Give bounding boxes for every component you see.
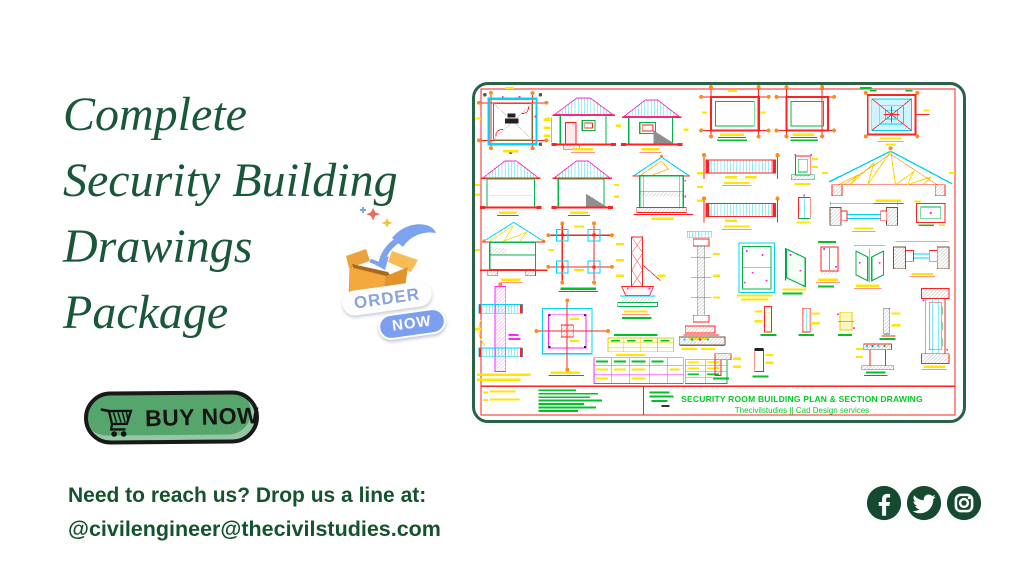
title-strip-notes xyxy=(483,389,602,411)
sheet-title: SECURITY ROOM BUILDING PLAN & SECTION DR… xyxy=(645,394,959,404)
cad-roof-truss xyxy=(822,143,955,203)
buy-now-button[interactable]: BUY NOW xyxy=(84,390,259,445)
cad-beam-plan-1 xyxy=(702,153,780,186)
contact-block: Need to reach us? Drop us a line at: @ci… xyxy=(68,484,441,542)
cad-bench-detail xyxy=(856,344,894,376)
cad-building-section xyxy=(633,155,703,220)
contact-email: @civilengineer@thecivilstudies.com xyxy=(68,517,441,542)
cad-elevation-front xyxy=(543,98,615,153)
cad-plate-detail xyxy=(914,201,945,226)
cad-footing-layout xyxy=(546,221,613,291)
cad-cross-wall-detail xyxy=(475,283,531,381)
cad-column-section-b xyxy=(796,195,810,224)
headline-line-1: Complete xyxy=(63,82,398,148)
cad-frame-section-detail xyxy=(816,241,840,287)
cad-guard-post-section xyxy=(475,222,553,282)
cad-column-section-a xyxy=(791,154,818,185)
cad-small-detail-1 xyxy=(755,306,777,335)
cad-column-layout-plan-2 xyxy=(775,85,836,141)
social-links xyxy=(866,485,982,521)
cad-window-head-detail xyxy=(894,241,950,277)
order-now-sticker[interactable]: ORDER NOW xyxy=(336,204,450,340)
instagram-icon[interactable] xyxy=(946,485,982,521)
cad-wall-column-section xyxy=(683,231,720,340)
cad-small-detail-3 xyxy=(837,312,855,336)
cad-sheet: SECURITY ROOM BUILDING PLAN & SECTION DR… xyxy=(472,82,966,423)
cart-icon xyxy=(100,403,137,439)
sheet-subtitle: Thecivilstudies || Cad Design services xyxy=(645,406,959,415)
buy-now-label: BUY NOW xyxy=(145,402,260,432)
cad-roof-plan xyxy=(860,87,929,141)
cad-elevation-rear xyxy=(475,161,541,215)
cad-wall-layer-strip xyxy=(679,337,725,350)
cad-double-door-detail xyxy=(854,245,886,288)
cad-schedule-table-magenta xyxy=(594,354,683,384)
promo-banner: Complete Security Building Drawings Pack… xyxy=(0,0,1024,576)
cad-door-panel-detail xyxy=(737,243,775,301)
cad-schedule-table-yellow xyxy=(608,334,673,352)
cad-tall-window-section xyxy=(921,289,949,370)
twitter-icon[interactable] xyxy=(906,485,942,521)
cad-column-footing-section xyxy=(616,237,666,319)
cad-bottom-detail-2 xyxy=(753,348,774,377)
cad-elevation-side xyxy=(616,100,688,153)
cad-elevation-side-2 xyxy=(551,161,618,215)
contact-prompt: Need to reach us? Drop us a line at: xyxy=(68,484,441,508)
cad-small-detail-2 xyxy=(798,308,820,335)
cad-beam-plan-2 xyxy=(702,196,780,229)
cad-guard-room-plan xyxy=(476,87,550,154)
facebook-icon[interactable] xyxy=(866,485,902,521)
cad-door-head-section xyxy=(830,202,897,232)
cad-drawings xyxy=(475,85,963,420)
cad-door-leaf-detail xyxy=(782,248,806,294)
cad-column-layout-plan-1 xyxy=(699,85,770,141)
cad-small-detail-4 xyxy=(880,308,901,339)
